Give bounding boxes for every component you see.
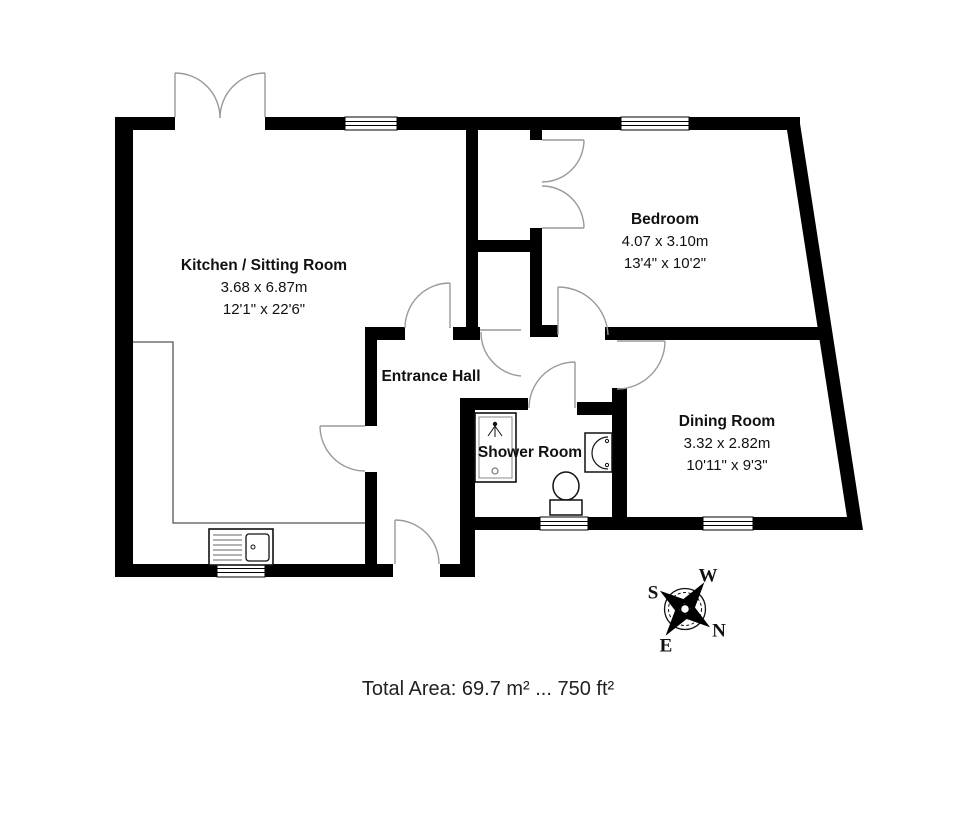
room-label-shower-room: Shower Room <box>430 442 630 464</box>
wall <box>466 240 533 252</box>
door-swing-icon <box>405 283 450 328</box>
wall <box>460 398 528 410</box>
room-label-entrance-hall: Entrance Hall <box>331 366 531 388</box>
room-label-kitchen-sitting-room: Kitchen / Sitting Room 3.68 x 6.87m 12'1… <box>144 255 384 321</box>
room-label-bedroom: Bedroom 4.07 x 3.10m 13'4" x 10'2" <box>545 209 785 275</box>
room-name: Kitchen / Sitting Room <box>144 255 384 277</box>
room-label-dining-room: Dining Room 3.32 x 2.82m 10'11" x 9'3" <box>607 411 847 477</box>
compass-label-south: S <box>648 583 659 604</box>
room-dimensions-imperial: 13'4" x 10'2" <box>545 253 785 275</box>
compass-label-west: W <box>699 566 718 587</box>
room-name: Bedroom <box>545 209 785 231</box>
wall <box>530 325 558 337</box>
room-dimensions-imperial: 12'1" x 22'6" <box>144 299 384 321</box>
room-dimensions-metric: 3.68 x 6.87m <box>144 277 384 299</box>
wall <box>466 117 478 340</box>
room-name: Shower Room <box>430 442 630 464</box>
window-icon <box>540 517 588 530</box>
room-name: Entrance Hall <box>331 366 531 388</box>
wall <box>365 327 405 340</box>
window-icon <box>345 117 397 130</box>
window-icon <box>217 564 265 577</box>
wall-layer <box>115 117 863 577</box>
room-name: Dining Room <box>607 411 847 433</box>
wall <box>530 130 542 140</box>
door-swing-icon <box>395 520 439 564</box>
compass-label-east: E <box>660 636 673 657</box>
toilet-icon <box>550 472 582 515</box>
kitchen-sink-icon <box>209 529 273 565</box>
door-swing-icon <box>529 362 575 408</box>
compass-label-north: N <box>712 621 726 642</box>
wall <box>115 117 133 577</box>
double-door-icon <box>175 73 265 118</box>
room-dimensions-imperial: 10'11" x 9'3" <box>607 455 847 477</box>
window-layer <box>217 117 753 577</box>
door-swing-icon <box>320 426 365 471</box>
wall <box>460 398 475 577</box>
door-swing-icon <box>558 287 608 335</box>
window-icon <box>621 117 689 130</box>
compass-rose-icon: W S N E <box>641 564 730 656</box>
wall <box>605 327 827 340</box>
room-dimensions-metric: 4.07 x 3.10m <box>545 231 785 253</box>
wall <box>530 228 542 337</box>
window-icon <box>703 517 753 530</box>
door-swing-icon <box>617 341 665 389</box>
wall <box>365 472 377 564</box>
wall <box>460 517 860 530</box>
total-area-text: Total Area: 69.7 m² ... 750 ft² <box>238 678 738 701</box>
floorplan-canvas: W S N E Kitchen / Sitting Room 3.68 x 6.… <box>0 0 980 823</box>
room-dimensions-metric: 3.32 x 2.82m <box>607 433 847 455</box>
